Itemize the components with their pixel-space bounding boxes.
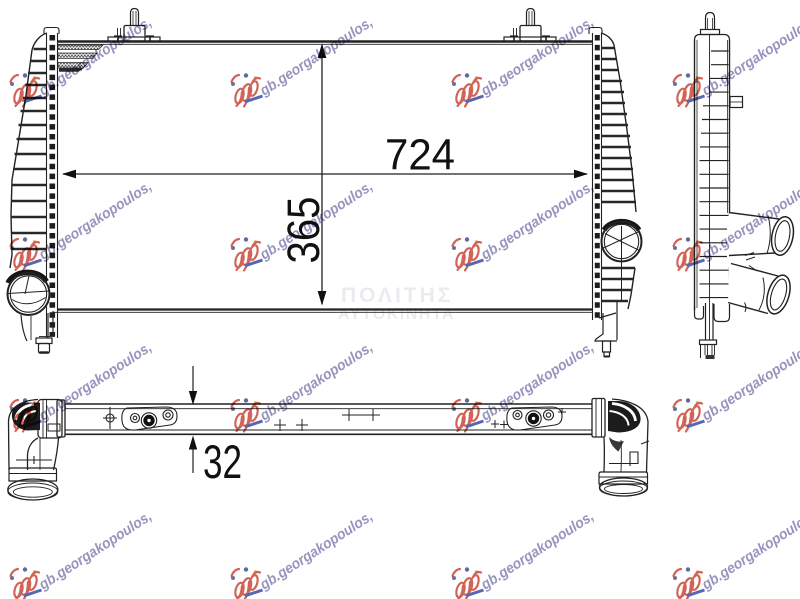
svg-text:724: 724 bbox=[385, 131, 455, 180]
svg-text:ΠΟΛΙΤΗΣ: ΠΟΛΙΤΗΣ bbox=[341, 284, 453, 307]
svg-text:32: 32 bbox=[203, 435, 242, 488]
